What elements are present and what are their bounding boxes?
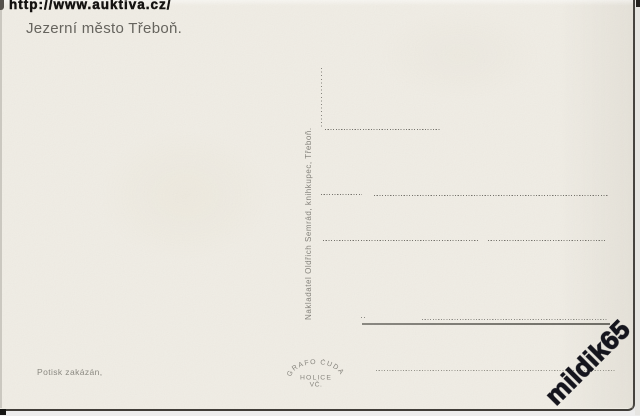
- svg-text:HOLICE: HOLICE: [300, 375, 332, 382]
- svg-text:VČ.: VČ.: [310, 380, 323, 389]
